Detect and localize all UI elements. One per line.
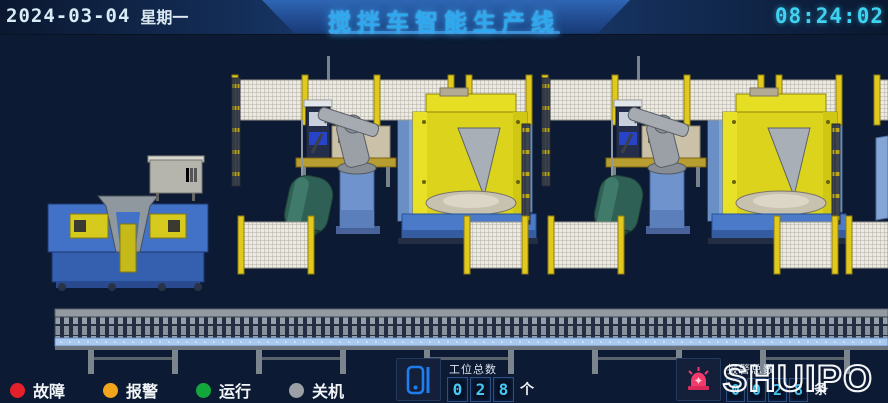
legend-label: 报警 (126, 378, 158, 402)
page-title: 搅拌车智能生产线 (328, 3, 560, 37)
weekday-text: 星期一 (140, 4, 188, 28)
station-counter-icon-box (396, 358, 441, 401)
shuipo-logo: SHUIPO (710, 356, 886, 402)
siren-icon (685, 366, 712, 393)
alarm-status-dot (103, 383, 118, 398)
date-display: 2024-03-04 星期一 (6, 4, 188, 28)
status-bar: 故障 报警 运行 关机 工位总数 0 (0, 352, 888, 403)
fault-status-dot (10, 383, 25, 398)
legend-label: 故障 (33, 378, 65, 402)
running-status-dot (196, 383, 211, 398)
legend-label: 关机 (312, 378, 344, 402)
station-counter-value: 0 2 8 个 (447, 377, 534, 402)
clock-display: 08:24:02 (775, 4, 884, 28)
robot-cell-partial (846, 75, 888, 274)
date-text: 2024-03-04 (6, 5, 130, 27)
off-status-dot (289, 383, 304, 398)
shuipo-logo-text: SHUIPO (723, 358, 874, 399)
robot-cell-1[interactable] (232, 56, 538, 274)
legend-item-fault: 故障 (10, 378, 65, 402)
status-legend: 故障 报警 运行 关机 (10, 378, 344, 402)
header-bar: 2024-03-04 星期一 搅拌车智能生产线 08:24:02 (0, 0, 888, 35)
station-counter-label: 工位总数 (449, 361, 497, 377)
dashboard: 2024-03-04 星期一 搅拌车智能生产线 08:24:02 故障 报警 运… (0, 0, 888, 403)
fixture-station[interactable] (48, 156, 208, 291)
legend-item-running: 运行 (196, 378, 251, 402)
robot-cell-2[interactable] (542, 56, 848, 274)
production-line-scene (0, 0, 888, 403)
legend-label: 运行 (219, 378, 251, 402)
digit-box: 2 (470, 377, 491, 402)
station-counter-unit: 个 (520, 379, 534, 402)
legend-item-alarm: 报警 (103, 378, 158, 402)
legend-item-off: 关机 (289, 378, 344, 402)
digit-box: 8 (493, 377, 514, 402)
digit-box: 0 (447, 377, 468, 402)
device-icon (405, 365, 433, 395)
